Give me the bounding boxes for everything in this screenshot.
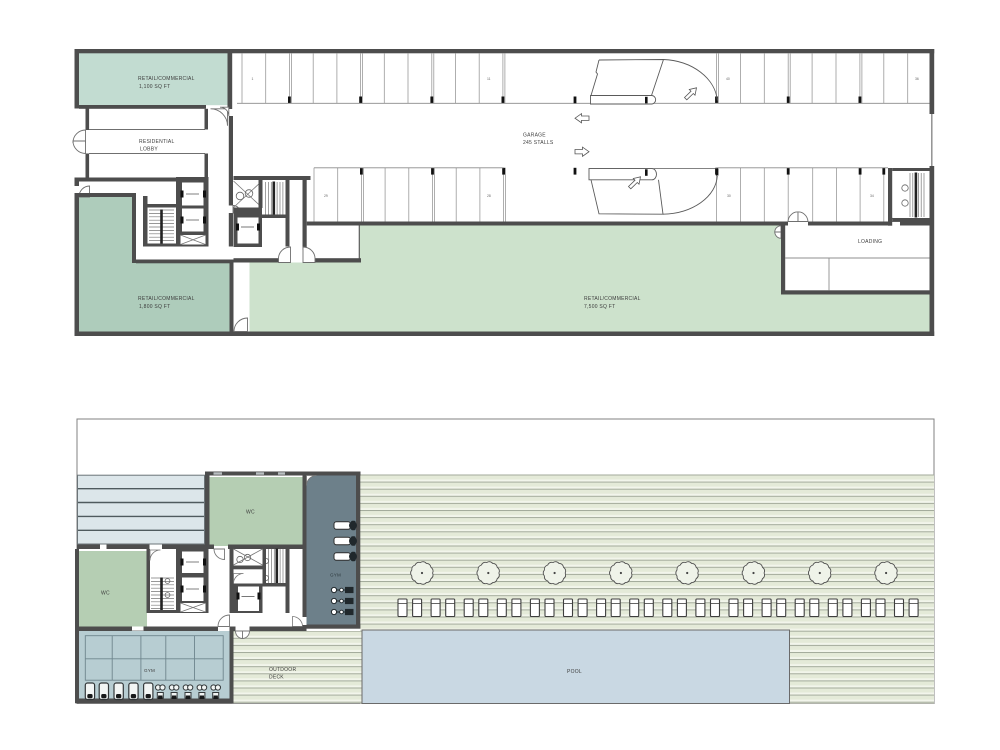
svg-text:34: 34 bbox=[870, 194, 874, 198]
svg-text:245 STALLS: 245 STALLS bbox=[523, 140, 554, 146]
svg-text:LOBBY: LOBBY bbox=[140, 147, 158, 153]
svg-text:RETAIL/COMMERCIAL: RETAIL/COMMERCIAL bbox=[584, 296, 641, 302]
svg-text:29: 29 bbox=[324, 194, 328, 198]
svg-text:7,500 SQ FT: 7,500 SQ FT bbox=[584, 304, 615, 310]
svg-text:POOL: POOL bbox=[567, 669, 582, 675]
svg-text:1: 1 bbox=[252, 77, 254, 81]
svg-text:DECK: DECK bbox=[269, 675, 284, 681]
svg-text:11: 11 bbox=[487, 77, 491, 81]
svg-text:36: 36 bbox=[915, 77, 919, 81]
svg-text:1,100 SQ FT: 1,100 SQ FT bbox=[139, 84, 170, 90]
svg-text:RETAIL/COMMERCIAL: RETAIL/COMMERCIAL bbox=[138, 296, 195, 302]
svg-text:GYM: GYM bbox=[330, 573, 341, 578]
svg-text:LOADING: LOADING bbox=[858, 239, 882, 245]
svg-text:GARAGE: GARAGE bbox=[523, 133, 546, 139]
svg-text:GYM: GYM bbox=[144, 668, 155, 673]
svg-text:WC: WC bbox=[246, 510, 255, 516]
svg-text:WC: WC bbox=[101, 591, 110, 597]
svg-text:OUTDOOR: OUTDOOR bbox=[269, 667, 296, 673]
svg-text:1,800 SQ FT: 1,800 SQ FT bbox=[139, 304, 170, 310]
svg-text:40: 40 bbox=[726, 77, 730, 81]
svg-text:30: 30 bbox=[727, 194, 731, 198]
svg-text:RETAIL/COMMERCIAL: RETAIL/COMMERCIAL bbox=[138, 76, 195, 82]
svg-text:28: 28 bbox=[487, 194, 491, 198]
svg-text:RESIDENTIAL: RESIDENTIAL bbox=[139, 139, 175, 145]
